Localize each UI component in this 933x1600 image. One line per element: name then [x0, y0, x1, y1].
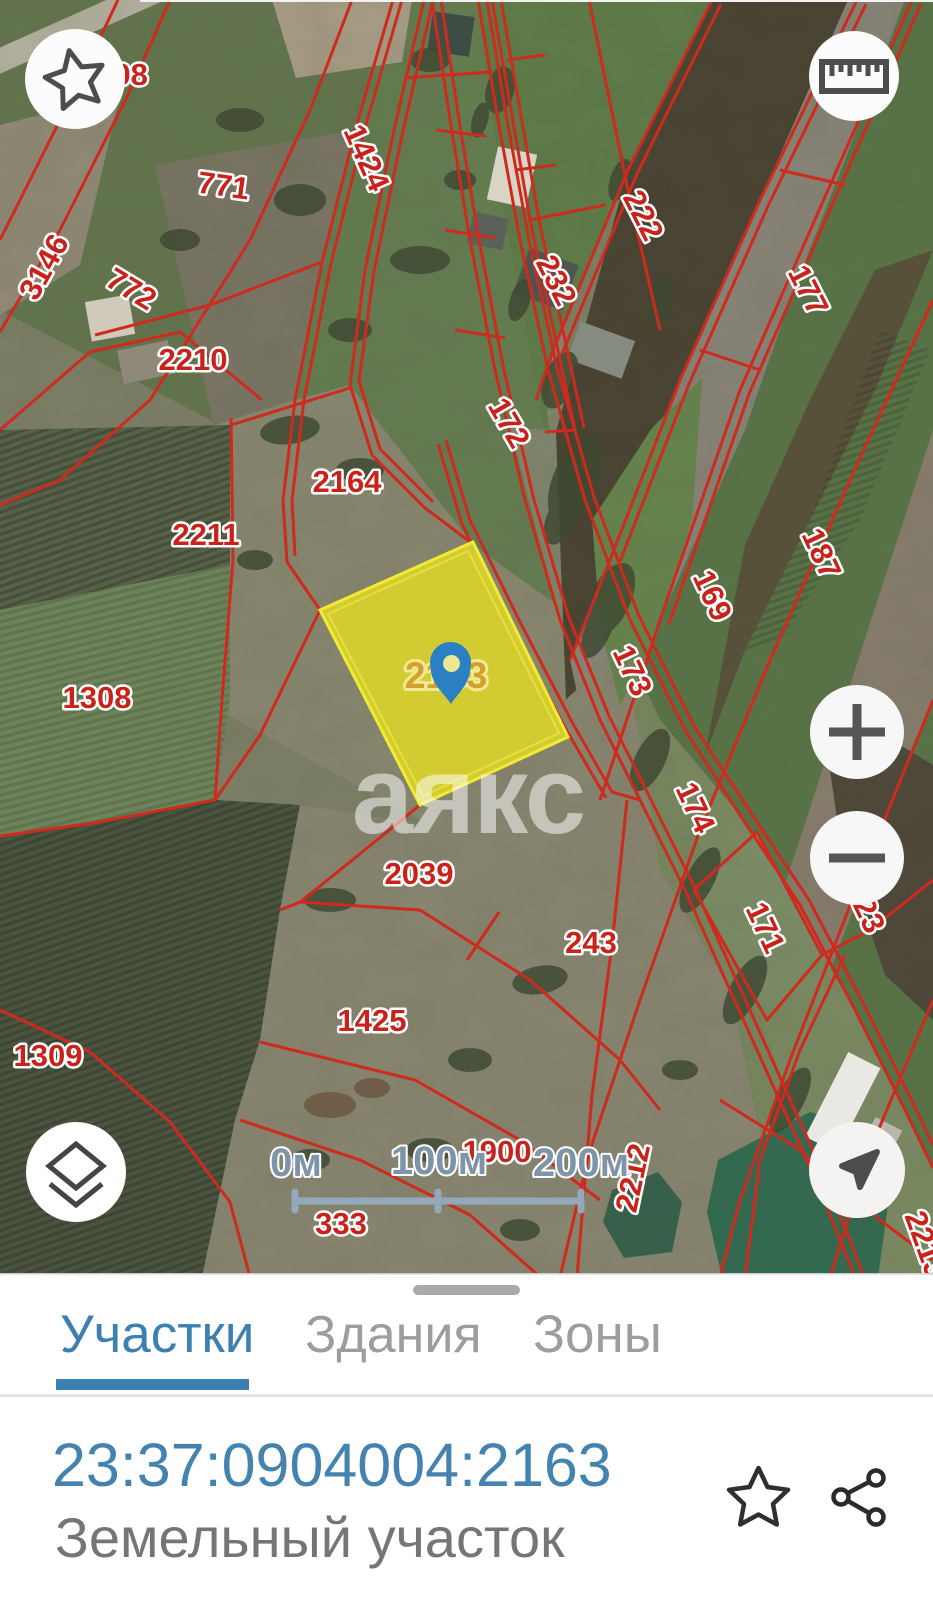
svg-text:Зоны: Зоны — [533, 1305, 662, 1364]
svg-text:Здания: Здания — [305, 1306, 482, 1364]
svg-text:2211: 2211 — [172, 517, 239, 552]
svg-text:771: 771 — [195, 165, 251, 207]
svg-text:200м: 200м — [533, 1141, 629, 1185]
svg-text:243: 243 — [565, 925, 617, 960]
svg-text:2164: 2164 — [313, 464, 383, 499]
svg-text:Земельный участок: Земельный участок — [55, 1506, 565, 1569]
svg-text:1309: 1309 — [14, 1038, 83, 1073]
svg-text:23:37:0904004:2163: 23:37:0904004:2163 — [52, 1431, 612, 1499]
svg-text:2210: 2210 — [159, 342, 228, 377]
svg-text:333: 333 — [315, 1206, 367, 1241]
svg-text:2039: 2039 — [385, 856, 454, 891]
svg-text:0м: 0м — [270, 1141, 322, 1185]
svg-text:аякс: аякс — [352, 734, 584, 857]
svg-text:Участки: Участки — [60, 1305, 254, 1364]
svg-text:1308: 1308 — [63, 680, 132, 715]
svg-text:100м: 100м — [391, 1139, 487, 1183]
svg-text:1425: 1425 — [338, 1003, 407, 1038]
